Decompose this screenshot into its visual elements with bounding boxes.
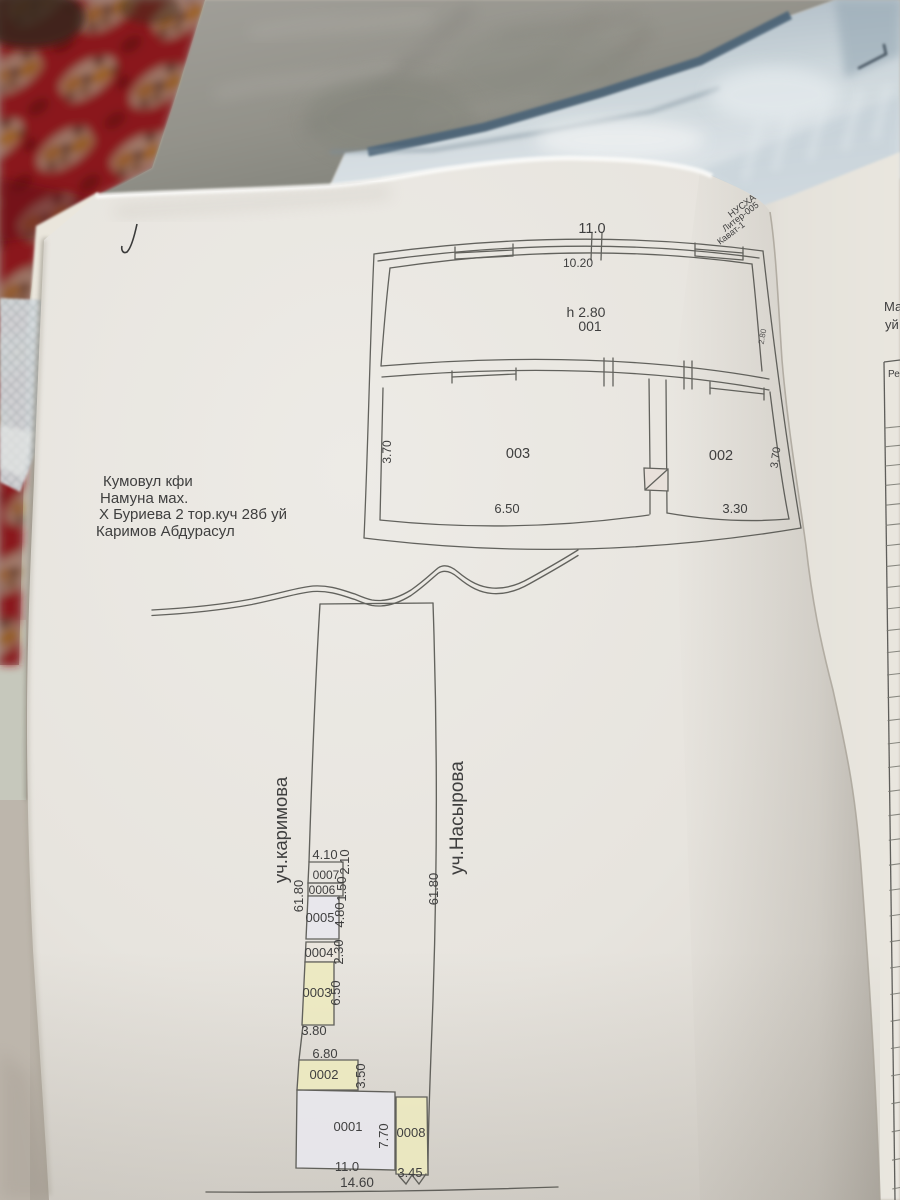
svg-text:3.80: 3.80 (301, 1023, 326, 1038)
svg-text:Кумовул кфи: Кумовул кфи (103, 473, 193, 490)
svg-text:Мах: Мах (884, 299, 900, 314)
svg-text:0008: 0008 (397, 1125, 426, 1140)
svg-text:0005: 0005 (306, 910, 335, 925)
svg-text:3.70: 3.70 (380, 440, 394, 464)
svg-text:Каримов Абдурасул: Каримов Абдурасул (96, 523, 235, 540)
svg-text:002: 002 (709, 448, 733, 464)
svg-text:3.45: 3.45 (397, 1165, 422, 1180)
svg-text:7.70: 7.70 (376, 1123, 391, 1148)
svg-text:0001: 0001 (334, 1119, 363, 1134)
svg-text:6.50: 6.50 (328, 980, 343, 1005)
svg-text:3.30: 3.30 (722, 501, 747, 516)
svg-text:14.60: 14.60 (340, 1175, 374, 1190)
svg-text:уч.Насырова: уч.Насырова (447, 761, 468, 875)
svg-text:6.80: 6.80 (312, 1046, 337, 1061)
svg-text:Х Буриева 2 тор.куч 28б уй: Х Буриева 2 тор.куч 28б уй (99, 506, 287, 523)
svg-text:2.10: 2.10 (337, 849, 352, 874)
svg-text:003: 003 (506, 446, 530, 462)
svg-text:0002: 0002 (310, 1067, 339, 1082)
svg-text:001: 001 (578, 318, 602, 334)
svg-text:Ре: Ре (888, 369, 900, 380)
svg-text:3.50: 3.50 (353, 1063, 368, 1088)
svg-text:11.0: 11.0 (335, 1159, 359, 1174)
svg-text:Намуна мах.: Намуна мах. (100, 490, 188, 507)
svg-text:1.50: 1.50 (334, 876, 349, 901)
svg-text:уй: уй (885, 317, 899, 332)
svg-text:61.80: 61.80 (426, 873, 441, 906)
svg-text:0004: 0004 (305, 945, 334, 960)
svg-text:6.50: 6.50 (494, 501, 519, 516)
svg-text:11.0: 11.0 (578, 221, 605, 237)
svg-text:уч.каримова: уч.каримова (270, 776, 291, 883)
svg-text:0006: 0006 (309, 883, 336, 897)
svg-text:4.80: 4.80 (332, 902, 347, 927)
svg-text:61.80: 61.80 (291, 880, 306, 913)
svg-text:2.30: 2.30 (331, 939, 346, 964)
svg-text:4.10: 4.10 (312, 847, 337, 862)
svg-text:10.20: 10.20 (563, 256, 593, 270)
